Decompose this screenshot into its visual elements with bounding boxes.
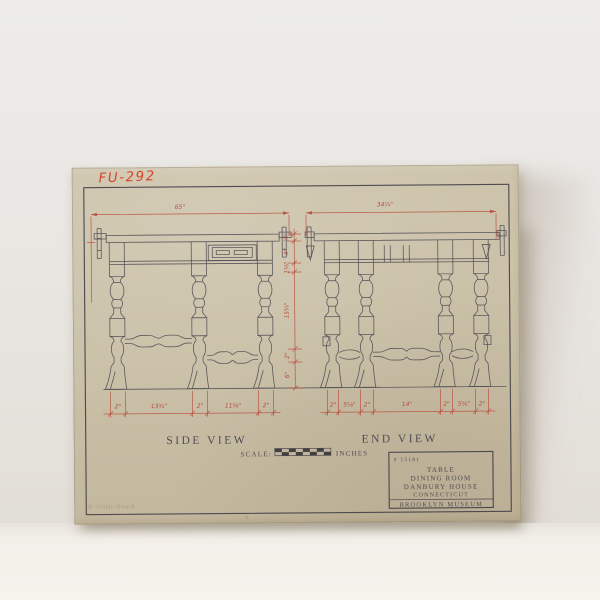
pencil-mark: k: [245, 515, 249, 521]
height-dim-foot: 6": [284, 372, 291, 379]
title-block-object: TABLE: [427, 466, 455, 474]
side-view-label: SIDE VIEW: [166, 434, 247, 447]
side-view-drawing: [94, 227, 292, 389]
end-width-dim: 34¼": [377, 201, 394, 208]
height-dim-apron: 4": [283, 249, 290, 256]
title-block-house: DANBURY HOUSE: [404, 483, 479, 492]
end-bottom-dim-4: 2": [443, 401, 450, 408]
side-bottom-dim-0: 2": [115, 403, 122, 410]
end-bottom-dim-1: 5⅝": [343, 402, 356, 409]
end-view-drawing: [305, 225, 507, 387]
end-bottom-dim-2: 2": [364, 401, 371, 408]
height-dim-rail: 1⅝": [283, 261, 290, 274]
side-bottom-dim-3: 11⅝": [225, 402, 242, 409]
side-bottom-dim-4: 2": [263, 402, 270, 409]
side-bottom-dim-2: 2": [197, 403, 204, 410]
end-bottom-dim-5: 5⅝": [458, 401, 471, 408]
drawing-sheet: FU-292: [72, 164, 522, 524]
height-dim-top-thickness: ⅞": [283, 233, 290, 242]
scale-suffix: INCHES: [336, 449, 369, 457]
height-dim-leg: 15¾": [284, 302, 291, 319]
title-block-number: # 15181: [394, 457, 420, 463]
scale-bar: SCALE: INCHES: [240, 448, 368, 459]
title-block: # 15181 TABLE DINING ROOM DANBURY HOUSE …: [389, 451, 493, 508]
title-block-room: DINING ROOM: [411, 474, 472, 482]
ground-line: [103, 386, 506, 389]
end-bottom-dim-3: 14": [402, 401, 413, 408]
photograph-of-drawing: { "photo": { "wall_color": "#e9e6e2", "s…: [0, 0, 600, 600]
title-block-state: CONNECTICUT: [413, 492, 469, 498]
side-width-dim: 65": [175, 204, 186, 211]
end-view-label: END VIEW: [362, 433, 438, 446]
title-block-institution: BROOKLYN MUSEUM: [399, 501, 483, 509]
end-bottom-dim-0: 2": [330, 402, 337, 409]
table-surface: [0, 523, 600, 600]
height-dim-stretcher: 2": [284, 352, 291, 359]
end-bottom-dim-6: 2": [479, 401, 486, 408]
pencil-signature: B. Holst-Gould: [88, 504, 135, 510]
catalog-number: FU-292: [98, 168, 156, 186]
scale-prefix: SCALE:: [241, 450, 272, 458]
measured-drawing: FU-292: [72, 164, 522, 524]
side-bottom-dim-1: 13¾": [151, 403, 168, 410]
